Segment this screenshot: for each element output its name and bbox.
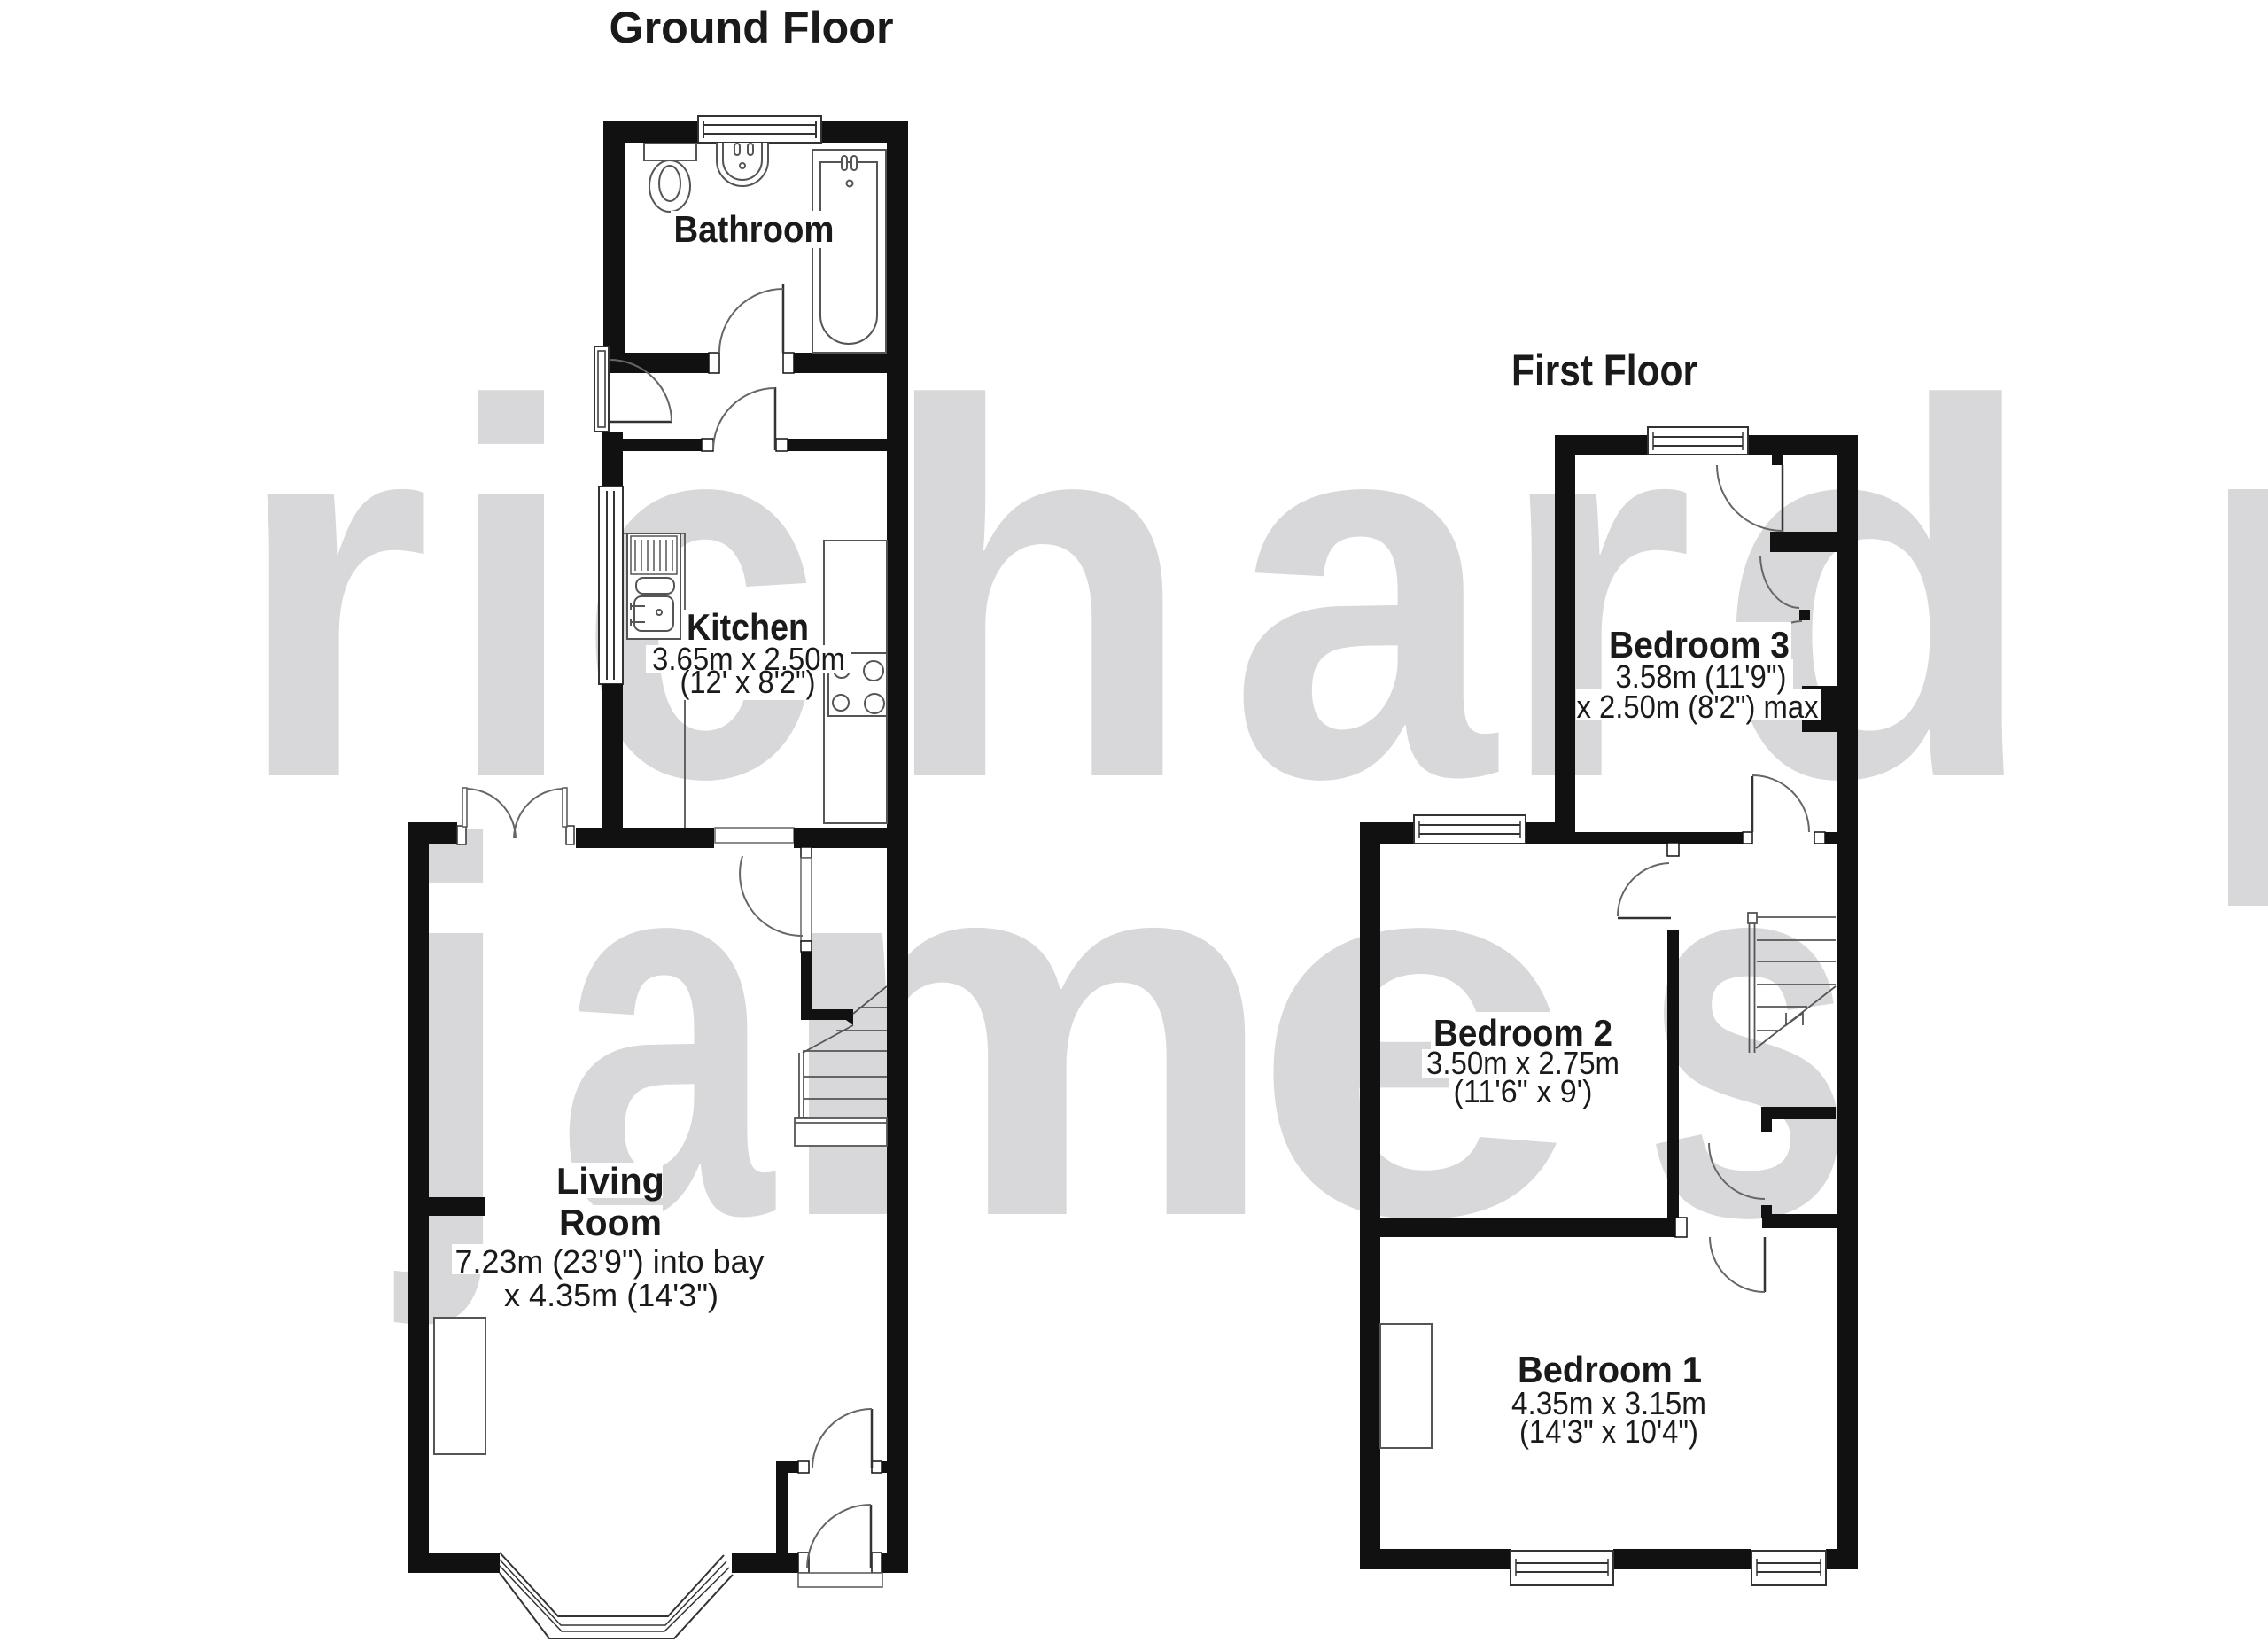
svg-text:(14'3" x 10'4"): (14'3" x 10'4") [1519,1413,1698,1450]
svg-text:Room: Room [559,1202,662,1243]
svg-text:Bedroom 1: Bedroom 1 [1518,1349,1702,1390]
svg-text:7.23m (23'9") into bay: 7.23m (23'9") into bay [455,1243,765,1280]
svg-text:Living: Living [556,1160,664,1202]
svg-text:(11'6" x 9'): (11'6" x 9') [1454,1073,1593,1109]
svg-text:Ground Floor: Ground Floor [610,3,894,52]
svg-text:(12' x 8'2"): (12' x 8'2") [680,664,816,700]
svg-text:x 4.35m (14'3"): x 4.35m (14'3") [504,1277,718,1313]
svg-text:x 2.50m (8'2") max: x 2.50m (8'2") max [1577,689,1819,725]
svg-text:First Floor: First Floor [1511,346,1697,395]
svg-text:Bathroom: Bathroom [674,208,835,250]
